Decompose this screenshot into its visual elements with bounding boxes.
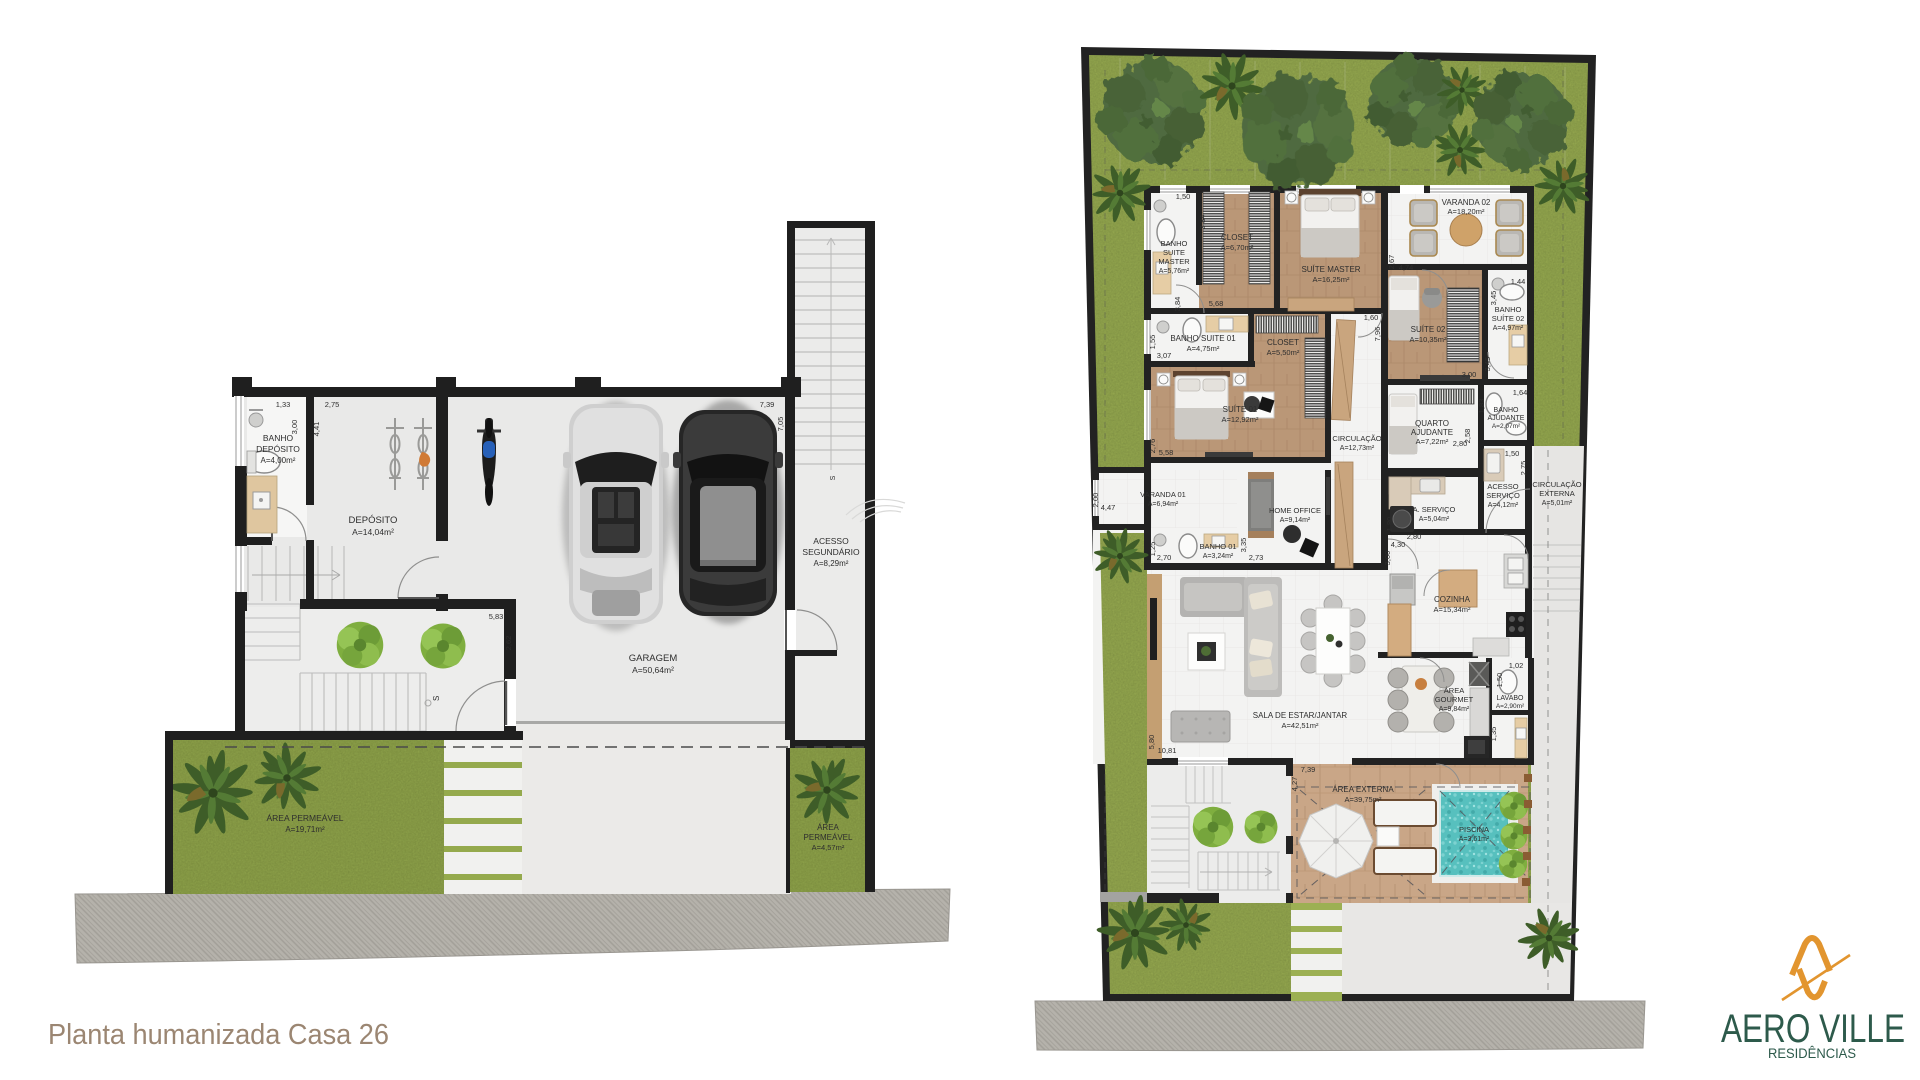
svg-text:DEPÓSITO: DEPÓSITO [349,515,398,526]
svg-text:10,81: 10,81 [1158,746,1177,755]
svg-text:5,80: 5,80 [1147,735,1156,750]
svg-text:ACESSO: ACESSO [1487,482,1518,491]
svg-text:VARANDA 02: VARANDA 02 [1442,198,1491,207]
svg-text:7,05: 7,05 [776,417,785,432]
svg-text:S: S [432,696,441,701]
svg-text:A=50,64m²: A=50,64m² [632,665,674,675]
svg-text:1,35: 1,35 [1489,727,1498,742]
svg-text:1,44: 1,44 [1511,277,1526,286]
svg-text:BANHO: BANHO [1161,239,1188,248]
svg-text:VARANDA 01: VARANDA 01 [1140,490,1186,499]
svg-text:3,07: 3,07 [1157,351,1172,360]
svg-text:BANHO: BANHO [263,433,294,443]
svg-text:BANHO SUITE 01: BANHO SUITE 01 [1170,334,1236,343]
svg-text:A=5,04m²: A=5,04m² [1419,516,1450,523]
svg-text:CIRCULAÇÃO: CIRCULAÇÃO [1532,480,1581,489]
svg-text:SUÍTE 02: SUÍTE 02 [1411,325,1446,334]
svg-text:1,83: 1,83 [1477,399,1486,414]
svg-text:BANHO: BANHO [1495,305,1522,314]
svg-text:7,39: 7,39 [1301,765,1316,774]
svg-text:MASTER: MASTER [1158,257,1190,266]
svg-text:A=5,76m²: A=5,76m² [1159,268,1190,275]
svg-text:A=9,84m²: A=9,84m² [1439,706,1470,713]
svg-text:Planta humanizada Casa 26: Planta humanizada Casa 26 [48,1019,389,1051]
svg-text:SUITE: SUITE [1163,248,1185,257]
svg-text:5,83: 5,83 [489,612,504,621]
svg-text:ÁREA: ÁREA [1444,686,1464,695]
svg-text:2,80: 2,80 [1453,439,1468,448]
svg-text:HOME OFFICE: HOME OFFICE [1269,506,1321,515]
svg-text:A=4,57m²: A=4,57m² [812,843,845,852]
svg-text:AJUDANTE: AJUDANTE [1488,415,1525,422]
svg-text:2,67: 2,67 [1387,255,1396,270]
svg-text:A=4,12m²: A=4,12m² [1488,502,1519,509]
svg-text:BANHO: BANHO [1494,407,1519,414]
svg-text:A=4,75m²: A=4,75m² [1187,344,1220,353]
svg-text:CIRCULAÇÃO: CIRCULAÇÃO [1332,434,1381,443]
svg-text:2,00: 2,00 [1091,493,1100,508]
svg-text:A=4,97m²: A=4,97m² [1493,325,1524,332]
svg-text:7,96: 7,96 [1373,327,1382,342]
svg-text:A=6,94m²: A=6,94m² [1148,501,1179,508]
svg-text:GARAGEM: GARAGEM [629,653,678,664]
svg-text:SEGUNDÁRIO: SEGUNDÁRIO [802,547,860,557]
svg-text:2,75: 2,75 [1519,461,1528,476]
svg-text:4,30: 4,30 [1391,540,1406,549]
svg-text:A=19,71m²: A=19,71m² [285,825,325,834]
svg-text:A=6,70m²: A=6,70m² [1221,243,1254,252]
svg-text:4,74: 4,74 [1399,263,1414,272]
svg-text:3,84: 3,84 [1198,215,1207,230]
svg-text:A. SERVIÇO: A. SERVIÇO [1413,505,1456,514]
svg-text:1,33: 1,33 [276,400,291,409]
svg-text:2,73: 2,73 [1249,553,1264,562]
svg-text:2,62: 2,62 [504,636,513,651]
svg-text:3,00: 3,00 [290,420,299,435]
svg-text:SUÍTE MASTER: SUÍTE MASTER [1301,265,1360,274]
svg-text:CLOSET: CLOSET [1221,233,1253,242]
svg-text:ÁREA EXTERNA: ÁREA EXTERNA [1332,785,1394,794]
svg-text:4,47: 4,47 [1101,503,1116,512]
svg-text:7,39: 7,39 [760,400,775,409]
svg-text:A=5,01m²: A=5,01m² [1542,500,1573,507]
svg-text:4,27: 4,27 [1290,777,1299,792]
svg-text:A=3,61m²: A=3,61m² [1459,836,1490,843]
svg-text:3,84: 3,84 [1173,297,1182,312]
svg-text:5,68: 5,68 [1209,299,1224,308]
svg-text:2,80: 2,80 [1407,532,1422,541]
svg-text:A=18,20m²: A=18,20m² [1448,207,1485,216]
svg-text:BANHO 01: BANHO 01 [1199,542,1236,551]
svg-text:3,00: 3,00 [1462,370,1477,379]
svg-text:1,50: 1,50 [1176,192,1191,201]
svg-text:A=8,29m²: A=8,29m² [814,559,849,568]
svg-text:1,50: 1,50 [1495,673,1504,688]
svg-text:A=42,51m²: A=42,51m² [1282,721,1319,730]
svg-text:EXTERNA: EXTERNA [1539,489,1574,498]
svg-text:AJUDANTE: AJUDANTE [1411,428,1453,437]
svg-text:1,50: 1,50 [1505,449,1520,458]
svg-text:A=3,24m²: A=3,24m² [1203,553,1234,560]
svg-text:A=2,90m²: A=2,90m² [1496,703,1525,710]
svg-text:SUÍTE 01: SUÍTE 01 [1223,405,1258,414]
svg-text:ÁREA: ÁREA [817,823,839,832]
svg-text:3,45: 3,45 [1489,291,1498,306]
svg-text:1,60: 1,60 [1364,313,1379,322]
svg-text:1,25: 1,25 [1148,542,1157,557]
svg-text:SALA DE ESTAR/JANTAR: SALA DE ESTAR/JANTAR [1253,711,1348,720]
svg-text:1,80: 1,80 [1385,517,1394,532]
svg-text:QUARTO: QUARTO [1415,419,1449,428]
svg-text:A=10,35m²: A=10,35m² [1410,335,1447,344]
svg-text:2,70: 2,70 [1157,553,1172,562]
svg-text:PISCINA: PISCINA [1459,825,1489,834]
svg-text:RESIDÊNCIAS: RESIDÊNCIAS [1768,1046,1856,1061]
svg-text:4,41: 4,41 [312,422,321,437]
svg-text:S: S [830,475,837,480]
svg-text:DEPÓSITO: DEPÓSITO [256,444,300,454]
svg-text:A=12,92m²: A=12,92m² [1222,415,1259,424]
svg-text:A=5,50m²: A=5,50m² [1267,348,1300,357]
svg-text:LAVABO: LAVABO [1497,695,1525,702]
svg-text:1,02: 1,02 [1509,661,1524,670]
svg-text:A=12,73m²: A=12,73m² [1340,445,1375,452]
svg-text:SERVIÇO: SERVIÇO [1486,491,1520,500]
svg-text:2,76: 2,76 [1148,439,1157,454]
svg-text:A=16,25m²: A=16,25m² [1313,275,1350,284]
svg-text:1,64: 1,64 [1513,388,1528,397]
svg-text:A=15,34m²: A=15,34m² [1434,605,1471,614]
svg-text:5,58: 5,58 [1159,448,1174,457]
svg-text:ÁREA PERMEÁVEL: ÁREA PERMEÁVEL [266,813,343,823]
svg-text:A=2,07m²: A=2,07m² [1492,423,1521,430]
svg-text:COZINHA: COZINHA [1434,595,1471,604]
svg-text:1,55: 1,55 [1148,335,1157,350]
svg-text:AERO VILLE: AERO VILLE [1721,1007,1905,1051]
svg-text:2,75: 2,75 [325,400,340,409]
svg-text:A=9,14m²: A=9,14m² [1280,517,1311,524]
svg-text:SUÍTE 02: SUÍTE 02 [1492,314,1525,323]
svg-text:CLOSET: CLOSET [1267,338,1299,347]
svg-text:ACESSO: ACESSO [813,536,849,546]
svg-text:A=39,75m²: A=39,75m² [1345,795,1382,804]
svg-text:3,35: 3,35 [1239,538,1248,553]
svg-text:GOURMET: GOURMET [1435,695,1474,704]
svg-text:3,00: 3,00 [1383,551,1392,566]
svg-text:PERMEÁVEL: PERMEÁVEL [804,833,853,842]
svg-text:3,45: 3,45 [1483,357,1492,372]
svg-text:A=7,22m²: A=7,22m² [1416,437,1449,446]
svg-text:A=4,00m²: A=4,00m² [261,456,296,465]
svg-text:A=14,04m²: A=14,04m² [352,527,394,537]
